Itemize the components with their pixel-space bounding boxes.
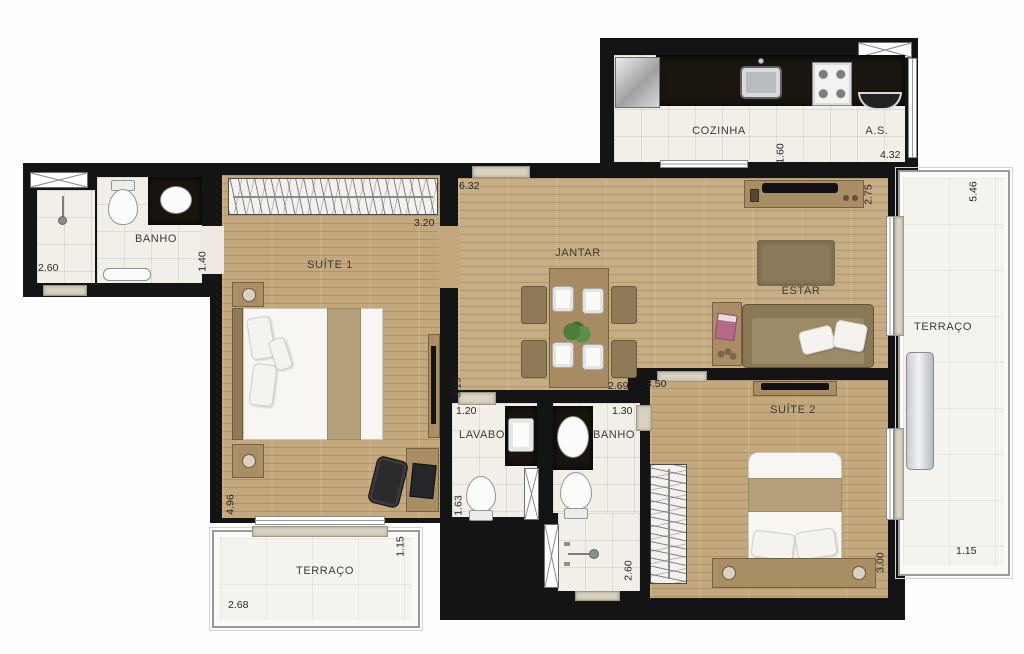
dim-banho1-depth: 1.40	[198, 242, 209, 282]
cozinha-fridge	[615, 57, 660, 108]
lavabo-toilet	[466, 476, 496, 522]
banho-wing-sill	[43, 285, 87, 296]
dim-banho2-depth: 2.60	[624, 551, 635, 591]
dining-chair-2	[521, 340, 547, 378]
suite2-lamp-left	[722, 566, 736, 580]
suite1-bed-headboard	[232, 308, 243, 440]
lamp	[242, 454, 256, 468]
dim-terraco-lateral-length: 5.46	[969, 172, 980, 212]
suite1-nightstand-top	[232, 282, 264, 307]
floor-plan: BANHO SUÍTE 1 COZINHA A.S. JANTAR ESTAR …	[0, 0, 1024, 654]
suite1-bed-throw	[327, 308, 361, 440]
cozinha-pass-door	[660, 160, 748, 168]
suite1-terrace-sill	[252, 526, 388, 537]
lavabo-label: LAVABO	[437, 430, 527, 441]
area-servico-label: A.S.	[832, 126, 922, 137]
dim-living-width: 6.32	[459, 181, 479, 192]
dim-cozinha-width: 4.32	[880, 150, 900, 161]
suite2-label: SUÍTE 2	[748, 405, 838, 416]
suite2-bed-throw	[748, 478, 842, 512]
banho1-sink	[160, 186, 192, 214]
toilet-bowl	[560, 472, 592, 510]
dim-lavabo-depth: 1.63	[454, 486, 465, 526]
dining-chair-3	[611, 286, 637, 324]
banho2-shower-head	[589, 549, 599, 559]
suite2-pillow-1	[751, 530, 796, 562]
suite1-nightstand-bottom	[232, 444, 264, 478]
estar-pillow-2	[832, 319, 869, 353]
dim-jantar-width: 2.69	[608, 381, 628, 392]
suite2-terrace-sill	[894, 428, 904, 520]
dim-terraco-frontal-depth: 1.15	[396, 527, 407, 567]
estar-speaker-dot-2	[852, 195, 858, 201]
suite1-pillow-2	[249, 363, 278, 408]
wardrobe-rod	[668, 469, 670, 579]
dining-plant	[560, 320, 594, 346]
dim-suite1-depth: 4.96	[226, 485, 237, 525]
suite1-terrace-door	[255, 516, 385, 525]
dim-lavabo-width: 1.20	[456, 406, 476, 417]
dim-closet1-width: 3.20	[414, 218, 434, 229]
shaft-x-icon	[31, 173, 87, 187]
banho2-shower-knob-1	[564, 542, 570, 546]
jantar-label: JANTAR	[533, 248, 623, 259]
banho2-door-threshold	[636, 405, 652, 431]
dim-banho2-width: 1.30	[612, 406, 632, 417]
toilet-tank	[564, 508, 588, 519]
cozinha-sink	[740, 66, 782, 99]
suite1-label: SUÍTE 1	[285, 260, 375, 271]
shaft-x-icon	[545, 525, 558, 587]
toilet-tank	[469, 510, 493, 521]
suite2-pillow-2	[794, 527, 838, 560]
dim-estar-depth: 2.75	[864, 175, 875, 215]
dining-chair-1	[521, 286, 547, 324]
estar-terrace-sill	[894, 216, 904, 336]
banho1-toilet	[108, 180, 138, 226]
shaft-x-icon	[525, 469, 538, 519]
dining-plate-4	[582, 344, 604, 370]
dim-terraco-frontal-width: 2.68	[228, 600, 248, 611]
banho1-label: BANHO	[111, 234, 201, 245]
shaft-banho1	[30, 172, 88, 188]
cozinha-label: COZINHA	[674, 126, 764, 137]
terraco-frontal-label: TERRAÇO	[280, 566, 370, 577]
banho2-shower-knob-2	[564, 562, 570, 566]
wardrobe-rod	[233, 196, 433, 198]
shaft-lavabo	[524, 468, 539, 520]
banho1-shower-head	[58, 216, 67, 225]
dim-jantar-depth: 3.19	[453, 368, 464, 408]
estar-picture-frame	[750, 189, 759, 202]
estar-magazine	[714, 313, 737, 342]
suite2-wardrobe	[650, 464, 687, 584]
estar-table-dots	[717, 348, 737, 360]
entry-threshold	[472, 166, 530, 178]
banho2-toilet	[560, 472, 592, 520]
suite1-door-opening	[438, 226, 460, 288]
estar-tv	[762, 183, 838, 193]
cozinha-faucet	[758, 58, 764, 64]
toilet-bowl	[466, 476, 496, 512]
estar-terrace-door	[886, 216, 894, 336]
banho2-shower-sill	[575, 591, 620, 601]
suite1-laptop	[409, 463, 436, 499]
dim-suite2-depth: 3.00	[876, 543, 887, 583]
dim-suite2-width: 3.50	[646, 379, 666, 390]
estar-rug	[757, 240, 835, 286]
terraco-lateral-label: TERRAÇO	[898, 322, 988, 333]
suite2-terrace-window	[886, 428, 894, 520]
cozinha-stove	[812, 62, 852, 106]
suite2-tv	[761, 383, 829, 390]
suite2-lamp-right	[852, 566, 866, 580]
dim-terraco-lateral-width: 1.15	[956, 546, 976, 557]
estar-label: ESTAR	[756, 286, 846, 297]
lamp	[242, 288, 256, 302]
lavabo-door-threshold	[458, 392, 496, 405]
toilet-bowl	[108, 189, 138, 225]
as-window	[908, 58, 917, 158]
banho1-bathtub	[103, 268, 151, 281]
shaft-banho2	[544, 524, 559, 588]
suite1-tv	[431, 346, 436, 424]
dining-plate-1	[552, 286, 574, 312]
dining-plate-2	[582, 288, 604, 314]
dim-cozinha-depth: 1.60	[776, 134, 787, 174]
suite1-wardrobe	[228, 178, 438, 215]
banho2-label: BANHO	[569, 430, 659, 441]
dim-banho1-width: 2.60	[38, 263, 58, 274]
banho1-shower-arm	[62, 196, 64, 218]
estar-speaker-dot-1	[843, 195, 849, 201]
terrace-frontal-floor	[220, 538, 412, 620]
dining-chair-4	[611, 340, 637, 378]
terrace-ac-unit	[906, 352, 934, 470]
